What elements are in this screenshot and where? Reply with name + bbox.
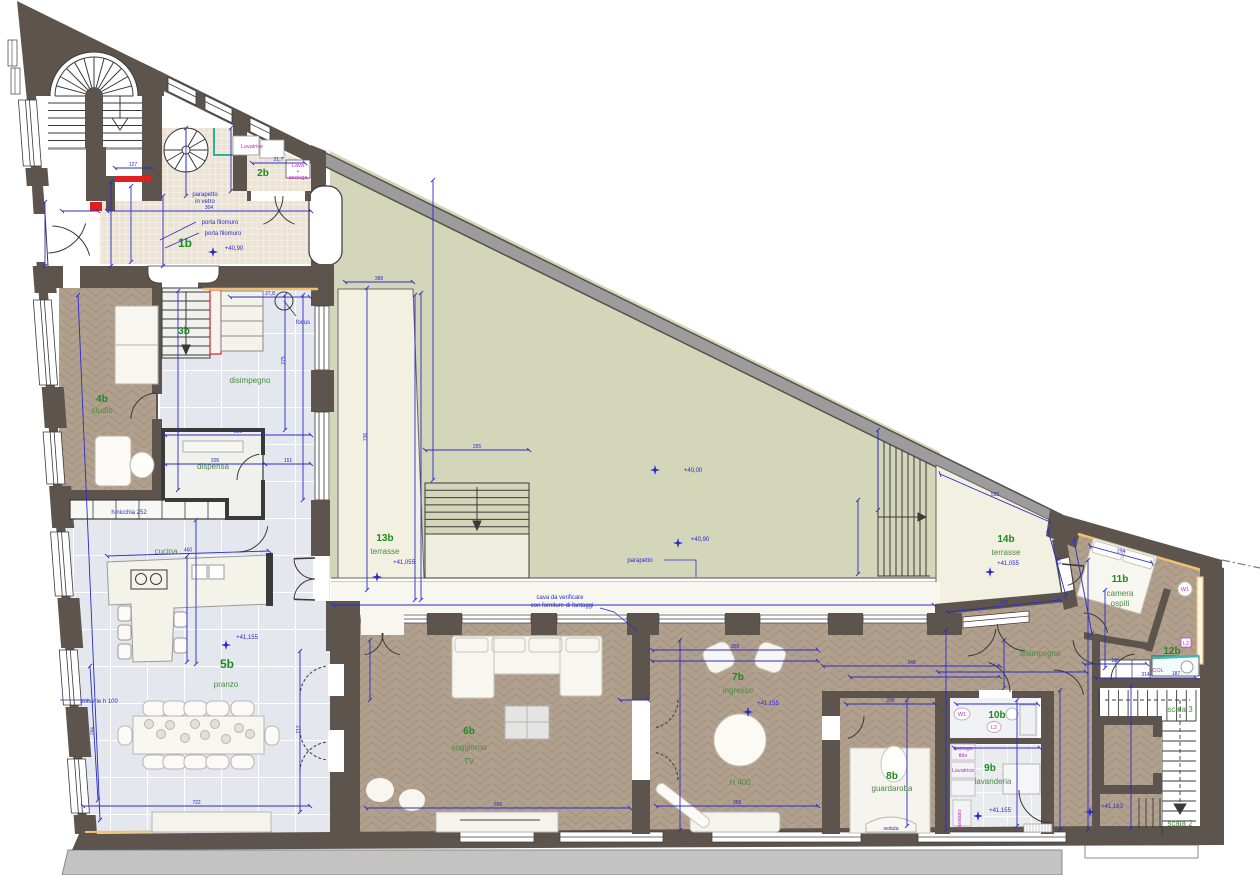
svg-text:disimpegno: disimpegno xyxy=(1020,649,1061,658)
svg-text:358: 358 xyxy=(733,800,742,806)
svg-text:9b: 9b xyxy=(984,763,996,774)
svg-text:+41,155: +41,155 xyxy=(989,808,1012,814)
svg-text:L2: L2 xyxy=(1183,641,1189,647)
svg-text:304: 304 xyxy=(205,205,214,211)
svg-text:+40,90: +40,90 xyxy=(225,246,244,252)
svg-text:scala 2: scala 2 xyxy=(1167,819,1193,828)
svg-text:+41,155: +41,155 xyxy=(757,701,780,707)
svg-text:151: 151 xyxy=(284,458,293,464)
svg-text:h nicchia 252: h nicchia 252 xyxy=(111,510,147,516)
svg-text:295: 295 xyxy=(90,726,97,735)
svg-text:W1: W1 xyxy=(1181,587,1189,593)
svg-text:camera: camera xyxy=(1107,589,1134,598)
svg-text:+41,055: +41,055 xyxy=(393,560,416,566)
svg-text:127: 127 xyxy=(129,162,138,168)
svg-text:+41,155: +41,155 xyxy=(236,635,259,641)
svg-text:dispensa: dispensa xyxy=(197,462,230,471)
svg-text:terrasse: terrasse xyxy=(371,547,400,556)
svg-text:pranzo: pranzo xyxy=(214,680,239,689)
svg-text:H 400: H 400 xyxy=(729,778,751,787)
svg-text:porta filomuro: porta filomuro xyxy=(205,231,242,237)
svg-text:286: 286 xyxy=(886,698,895,704)
svg-text:460: 460 xyxy=(184,548,193,554)
svg-text:Lavatoio: Lavatoio xyxy=(957,810,963,831)
svg-text:2b: 2b xyxy=(257,168,269,179)
svg-text:Lavatrice: Lavatrice xyxy=(241,144,263,150)
svg-text:W1: W1 xyxy=(958,712,966,718)
svg-text:4b: 4b xyxy=(96,394,108,405)
svg-text:parapetto: parapetto xyxy=(627,558,653,564)
svg-text:tble: tble xyxy=(959,753,968,759)
svg-text:388: 388 xyxy=(375,276,384,282)
svg-text:186: 186 xyxy=(1111,658,1120,664)
svg-text:cucina: cucina xyxy=(154,547,178,556)
svg-text:asciuga: asciuga xyxy=(289,175,309,181)
svg-text:21,7: 21,7 xyxy=(274,157,284,163)
svg-text:Lavatrice: Lavatrice xyxy=(952,768,974,774)
svg-text:ingresso: ingresso xyxy=(723,686,754,695)
svg-text:COL: COL xyxy=(1152,668,1163,674)
svg-text:boiserie h 100: boiserie h 100 xyxy=(80,699,118,705)
svg-text:cava da verificare: cava da verificare xyxy=(536,595,584,601)
svg-text:seduta: seduta xyxy=(883,826,898,832)
svg-text:736: 736 xyxy=(363,433,369,442)
svg-text:556: 556 xyxy=(494,802,503,808)
svg-text:in vetro: in vetro xyxy=(195,199,215,205)
svg-text:terrasse: terrasse xyxy=(992,548,1021,557)
svg-text:7b: 7b xyxy=(732,672,744,683)
svg-text:27,8: 27,8 xyxy=(265,291,275,297)
svg-text:disimpegno: disimpegno xyxy=(230,376,271,385)
svg-text:305: 305 xyxy=(234,429,243,435)
svg-text:348: 348 xyxy=(907,660,916,666)
svg-text:porta filomuro: porta filomuro xyxy=(202,220,239,226)
svg-text:studio: studio xyxy=(91,406,113,415)
svg-text:6b: 6b xyxy=(463,726,475,737)
svg-text:ospiti: ospiti xyxy=(1111,599,1130,608)
svg-text:parapetto: parapetto xyxy=(192,192,218,198)
svg-text:358: 358 xyxy=(731,644,740,650)
svg-text:294: 294 xyxy=(1117,549,1126,555)
svg-text:+41,163: +41,163 xyxy=(1101,804,1124,810)
svg-text:+40,00: +40,00 xyxy=(684,468,703,474)
svg-text:187: 187 xyxy=(1172,671,1181,677)
svg-text:+41,055: +41,055 xyxy=(997,561,1020,567)
svg-text:582: 582 xyxy=(991,492,1000,498)
svg-text:5b: 5b xyxy=(220,657,234,671)
svg-text:11b: 11b xyxy=(1112,574,1129,585)
svg-text:TV: TV xyxy=(464,757,475,766)
svg-text:13b: 13b xyxy=(376,533,393,544)
svg-text:Asciuga: Asciuga xyxy=(953,746,974,752)
svg-text:scala 3: scala 3 xyxy=(1167,705,1193,714)
svg-text:guardaroba: guardaroba xyxy=(872,784,913,793)
svg-text:275: 275 xyxy=(281,356,287,365)
svg-text:12b: 12b xyxy=(1163,646,1180,657)
svg-text:712: 712 xyxy=(296,725,302,734)
svg-text:soggiorno: soggiorno xyxy=(451,743,487,752)
svg-text:314: 314 xyxy=(1141,672,1150,678)
svg-text:1b: 1b xyxy=(178,236,192,250)
svg-text:10b: 10b xyxy=(988,710,1005,721)
svg-text:722: 722 xyxy=(192,800,201,806)
svg-text:lavanderia: lavanderia xyxy=(975,777,1012,786)
svg-text:255: 255 xyxy=(473,444,482,450)
svg-text:302: 302 xyxy=(1000,600,1009,606)
svg-text:+40,90: +40,90 xyxy=(691,537,710,543)
svg-text:8b: 8b xyxy=(886,771,898,782)
svg-text:14b: 14b xyxy=(997,534,1014,545)
svg-text:con forniture di fantaggi: con forniture di fantaggi xyxy=(531,603,594,609)
svg-text:3b: 3b xyxy=(178,326,190,337)
svg-text:L2: L2 xyxy=(991,725,997,731)
